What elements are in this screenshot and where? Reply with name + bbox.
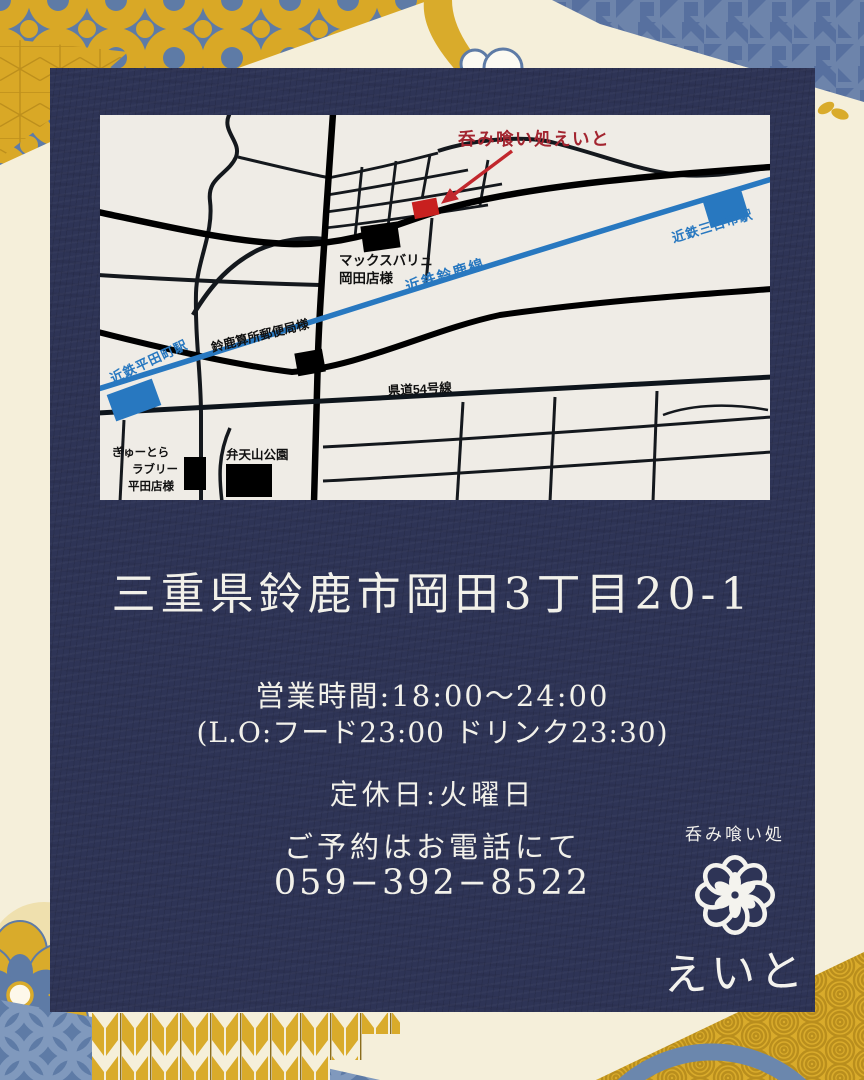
map-label-restaurant: 呑み喰い処えいと	[457, 129, 610, 149]
map-roads	[100, 115, 770, 500]
logo-name: えいと	[654, 934, 816, 1004]
gold-flourish	[816, 99, 850, 122]
map-label-gyutora-3: 平田店様	[128, 479, 174, 493]
yagasuri-pattern	[92, 1013, 400, 1080]
flower-crest-icon	[689, 849, 781, 941]
restaurant-logo: 呑み喰い処	[655, 820, 815, 1001]
map-label-gyutora-2: ラブリー	[132, 462, 178, 476]
map-label-post-office: 鈴鹿算所郵便局様	[210, 316, 311, 355]
flyer: 呑み喰い処えいと 近鉄三日市駅 近鉄平田町駅 近鉄鈴鹿線 マックスバリュ 岡田店…	[0, 0, 864, 1080]
hours-line2: (L.O:フード23:00 ドリンク23:30)	[50, 711, 815, 751]
access-map: 呑み喰い処えいと 近鉄三日市駅 近鉄平田町駅 近鉄鈴鹿線 マックスバリュ 岡田店…	[100, 115, 770, 500]
hours-line1: 営業時間:18:00〜24:00	[50, 673, 815, 715]
logo-tagline: 呑み喰い処	[655, 820, 815, 845]
map-label-park: 弁天山公園	[226, 447, 289, 462]
address-text: 三重県鈴鹿市岡田3丁目20-1	[50, 558, 815, 622]
restaurant-marker	[412, 198, 440, 219]
closed-day-text: 定休日:火曜日	[50, 773, 815, 813]
map-label-gyutora-1: ぎゅーとら	[112, 445, 169, 459]
info-card: 呑み喰い処えいと 近鉄三日市駅 近鉄平田町駅 近鉄鈴鹿線 マックスバリュ 岡田店…	[50, 68, 815, 1012]
map-label-maxvalu-1: マックスバリュ	[339, 253, 433, 268]
map-label-maxvalu-2: 岡田店様	[339, 270, 393, 286]
